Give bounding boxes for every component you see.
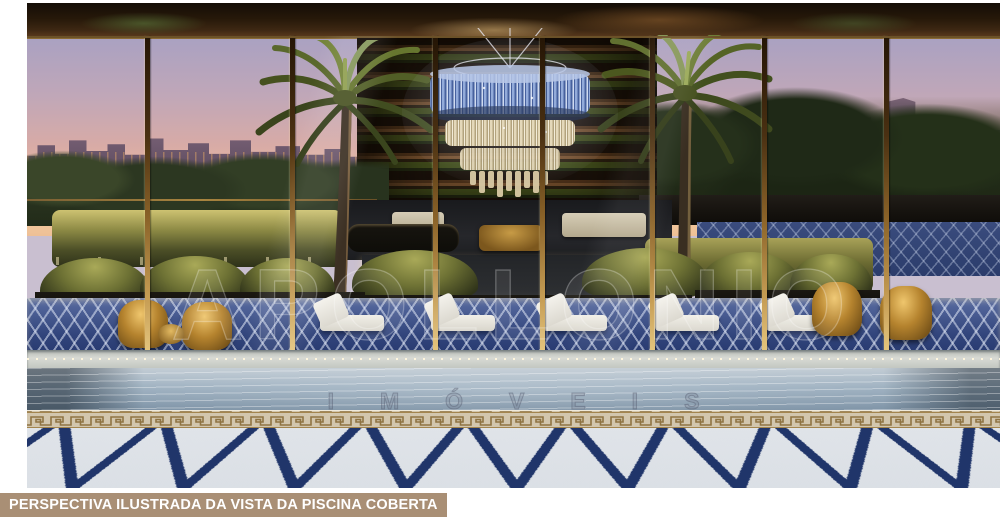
glass-mullion — [762, 36, 767, 366]
diamond-tile-floor — [27, 428, 1000, 488]
gold-side-table — [158, 324, 184, 344]
chaise-lounger — [431, 315, 495, 331]
pool-rendering-image: APOLLONIO IMÓVEIS — [27, 3, 1000, 488]
caption-text: PERSPECTIVA ILUSTRADA DA VISTA DA PISCIN… — [9, 493, 438, 517]
diamond-tile-pattern — [27, 428, 1000, 488]
glass-frame-top — [27, 36, 1000, 38]
chaise-lounger — [543, 315, 607, 331]
pool-water — [27, 368, 1000, 410]
caption-bar: PERSPECTIVA ILUSTRADA DA VISTA DA PISCIN… — [0, 493, 447, 517]
gold-armchair — [812, 282, 862, 336]
chaise-lounger — [320, 315, 384, 331]
chaise-lounger — [655, 315, 719, 331]
pool-edge-coping — [27, 350, 1000, 368]
greek-key-pattern — [27, 411, 1000, 429]
glass-mullion — [433, 36, 438, 366]
gold-armchair — [182, 302, 232, 350]
glass-mullion — [540, 36, 545, 366]
glass-mullion — [290, 36, 295, 366]
glass-mullion — [145, 36, 150, 366]
glass-mullion — [650, 36, 655, 366]
gold-seating-set — [479, 225, 543, 251]
glass-mullion — [884, 36, 889, 366]
